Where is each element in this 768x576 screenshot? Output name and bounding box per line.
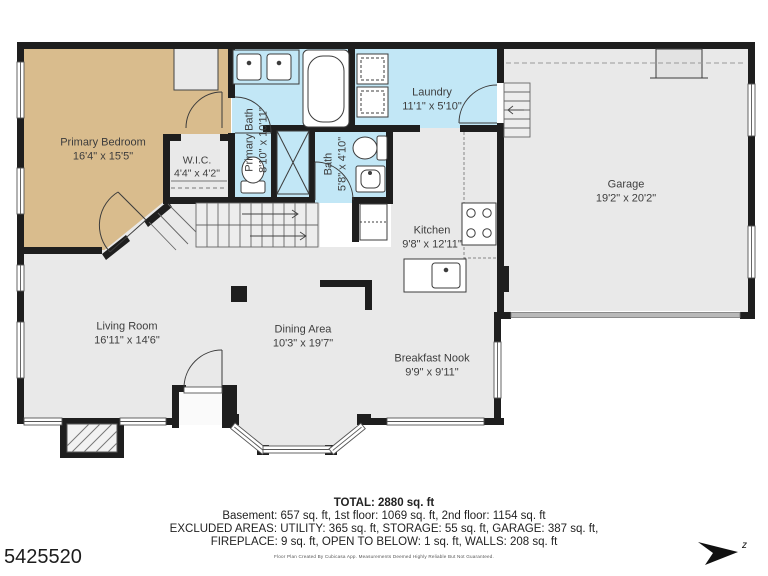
stairs-garage [504, 83, 530, 137]
garage-door [511, 311, 740, 319]
north-arrow-icon [698, 542, 738, 565]
dryer [357, 87, 388, 117]
north-arrow: z [690, 531, 754, 573]
area-summary: TOTAL: 2880 sq. ft Basement: 657 sq. ft,… [0, 497, 768, 559]
mls-number: 5425520 [4, 546, 82, 569]
fireplace [67, 424, 117, 452]
excluded-areas-line-1: EXCLUDED AREAS: UTILITY: 365 sq. ft, STO… [0, 523, 768, 536]
sink-1 [237, 54, 261, 80]
garage-window-1 [748, 84, 755, 136]
floor-plan-drawing [0, 0, 768, 496]
shower [277, 131, 309, 194]
window-left-2 [17, 168, 24, 214]
kitchen-island [404, 259, 466, 292]
nook-bottom-window [387, 418, 484, 425]
dining-floor [231, 247, 391, 421]
nook-floor [368, 300, 497, 421]
porch-floor [179, 391, 222, 425]
sink-2 [267, 54, 291, 80]
bay-window-center [263, 446, 331, 453]
window-left-4 [17, 322, 24, 378]
closet-floor [174, 48, 218, 90]
stove [462, 203, 496, 245]
excluded-areas-line-2: FIREPLACE: 9 sq. ft, OPEN TO BELOW: 1 sq… [0, 536, 768, 549]
nook-right-window [494, 342, 501, 398]
window-bottom-2 [120, 418, 166, 425]
toilet-primary [241, 157, 265, 193]
bathtub [303, 50, 349, 127]
garage-floor [504, 49, 748, 312]
garage-window-2 [748, 226, 755, 278]
washer [357, 54, 388, 84]
wic-floor [166, 134, 228, 203]
total-area: TOTAL: 2880 sq. ft [0, 497, 768, 510]
floor-plan-page: Primary Bedroom16'4" x 15'5" W.I.C.4'4" … [0, 0, 768, 576]
toilet-bath [353, 136, 387, 160]
north-arrow-label: z [741, 540, 747, 551]
entry-threshold [184, 387, 222, 393]
sink-bath [356, 166, 385, 192]
window-left-3 [17, 265, 24, 291]
window-left-1 [17, 62, 24, 118]
disclaimer: Floor Plan Created By Cubicasa App. Meas… [0, 554, 768, 559]
refrigerator [360, 204, 387, 240]
window-bottom-1 [24, 418, 62, 425]
floors-area-line: Basement: 657 sq. ft, 1st floor: 1069 sq… [0, 510, 768, 523]
